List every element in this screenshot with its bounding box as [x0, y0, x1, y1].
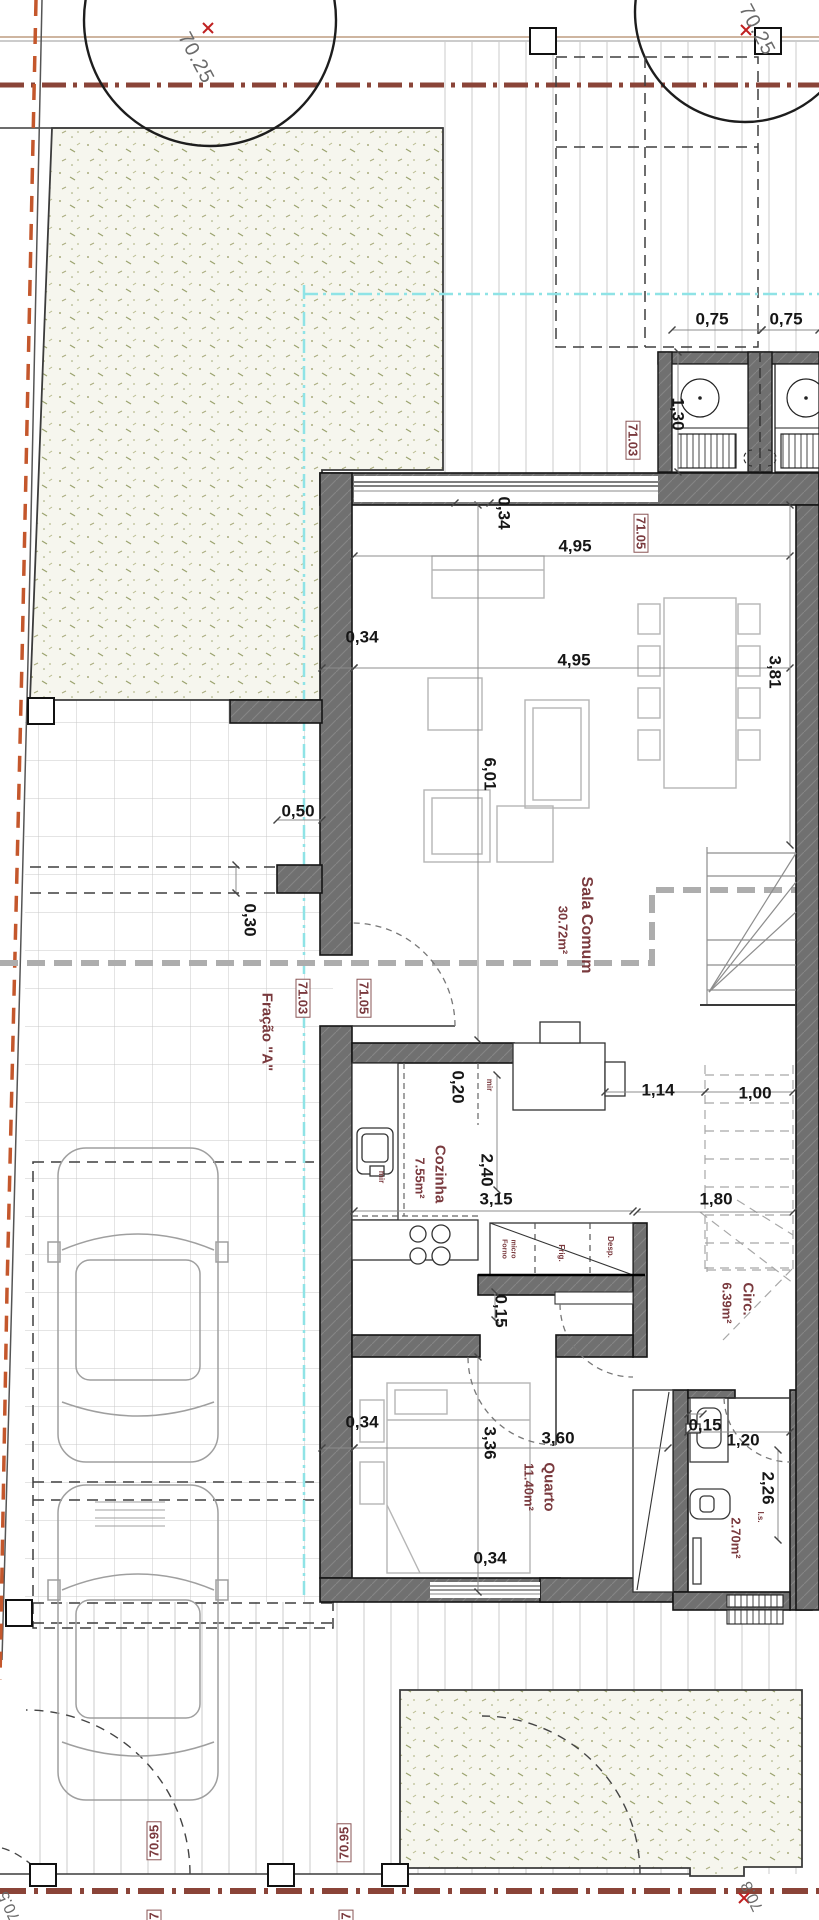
- dim-240: 2,40: [479, 1153, 496, 1186]
- dim-315: 3,15: [479, 1191, 512, 1208]
- room-circ-name: Circ.: [741, 1282, 756, 1315]
- bedroom-furniture: [360, 1383, 530, 1573]
- dim-034-a: 0,34: [496, 496, 513, 529]
- room-quarto-name: Quarto: [542, 1462, 557, 1511]
- fixture-frig: Frig.: [557, 1244, 565, 1261]
- dim-130: 1,30: [670, 397, 687, 430]
- dim-495-a: 4,95: [558, 538, 591, 555]
- level-box-partial-b: 7: [339, 1909, 354, 1920]
- dim-075-b: 0,75: [769, 311, 802, 328]
- dim-015-b: 0,15: [688, 1417, 721, 1434]
- dim-034-c: 0,34: [345, 1414, 378, 1431]
- level-box-7095-a: 70.95: [147, 1822, 162, 1861]
- dim-180: 1,80: [699, 1191, 732, 1208]
- fixture-forno-line1: Forno: [501, 1239, 508, 1259]
- room-cozinha-area: 7.55m²: [414, 1157, 427, 1198]
- level-box-7103-a: 71.03: [626, 421, 641, 460]
- dim-495-b: 4,95: [557, 652, 590, 669]
- dim-100: 1,00: [738, 1085, 771, 1102]
- room-quarto-area: 11.40m²: [523, 1463, 536, 1511]
- dim-075-a: 0,75: [695, 311, 728, 328]
- room-cozinha-name: Cozinha: [433, 1145, 448, 1203]
- level-box-partial-a: 7: [147, 1909, 162, 1920]
- fixture-mir-b: mir: [377, 1171, 385, 1183]
- room-sala-name: Sala Comum: [578, 877, 594, 974]
- garden-bottom-right: [400, 1690, 802, 1876]
- room-is-area: 2.70m²: [730, 1517, 743, 1558]
- dim-381: 3,81: [767, 655, 784, 688]
- dim-050: 0,50: [281, 803, 314, 820]
- floor-plan-drawing: [0, 0, 819, 1920]
- wardrobe: [633, 1390, 673, 1592]
- dim-601: 6,01: [482, 757, 499, 790]
- level-box-7105-b: 71.05: [357, 979, 372, 1018]
- garden-top-left: [30, 128, 443, 700]
- stairs-solid: [700, 847, 796, 1005]
- dim-226: 2,26: [760, 1471, 777, 1504]
- dim-020: 0,20: [450, 1070, 467, 1103]
- level-box-7095-b: 70.95: [337, 1824, 352, 1863]
- dim-030: 0,30: [242, 903, 259, 936]
- room-circ-area: 6.39m²: [721, 1282, 734, 1323]
- dim-015-a: 0,15: [493, 1294, 510, 1327]
- fixture-mir-a: mir: [485, 1079, 493, 1091]
- dim-336: 3,36: [482, 1426, 499, 1459]
- floor-plan-page: 70.25 70.25 70.8 70.5 71.03 71.05 71.03 …: [0, 0, 819, 1920]
- level-box-7105-a: 71.05: [634, 514, 649, 553]
- living-furniture: [424, 556, 760, 862]
- fixture-forno-line2: micro: [510, 1239, 517, 1258]
- dim-034-b: 0,34: [345, 629, 378, 646]
- fixture-desp: Desp.: [606, 1236, 614, 1258]
- room-sala-area: 30.72m²: [557, 906, 570, 954]
- dim-360: 3,60: [541, 1430, 574, 1447]
- level-box-7103-b: 71.03: [296, 979, 311, 1018]
- fraction-label: Fração "A": [260, 993, 275, 1071]
- room-is-name: I.s.: [756, 1511, 764, 1522]
- dim-034-d: 0,34: [473, 1550, 506, 1567]
- dim-120: 1,20: [726, 1432, 759, 1449]
- dim-114: 1,14: [641, 1082, 674, 1099]
